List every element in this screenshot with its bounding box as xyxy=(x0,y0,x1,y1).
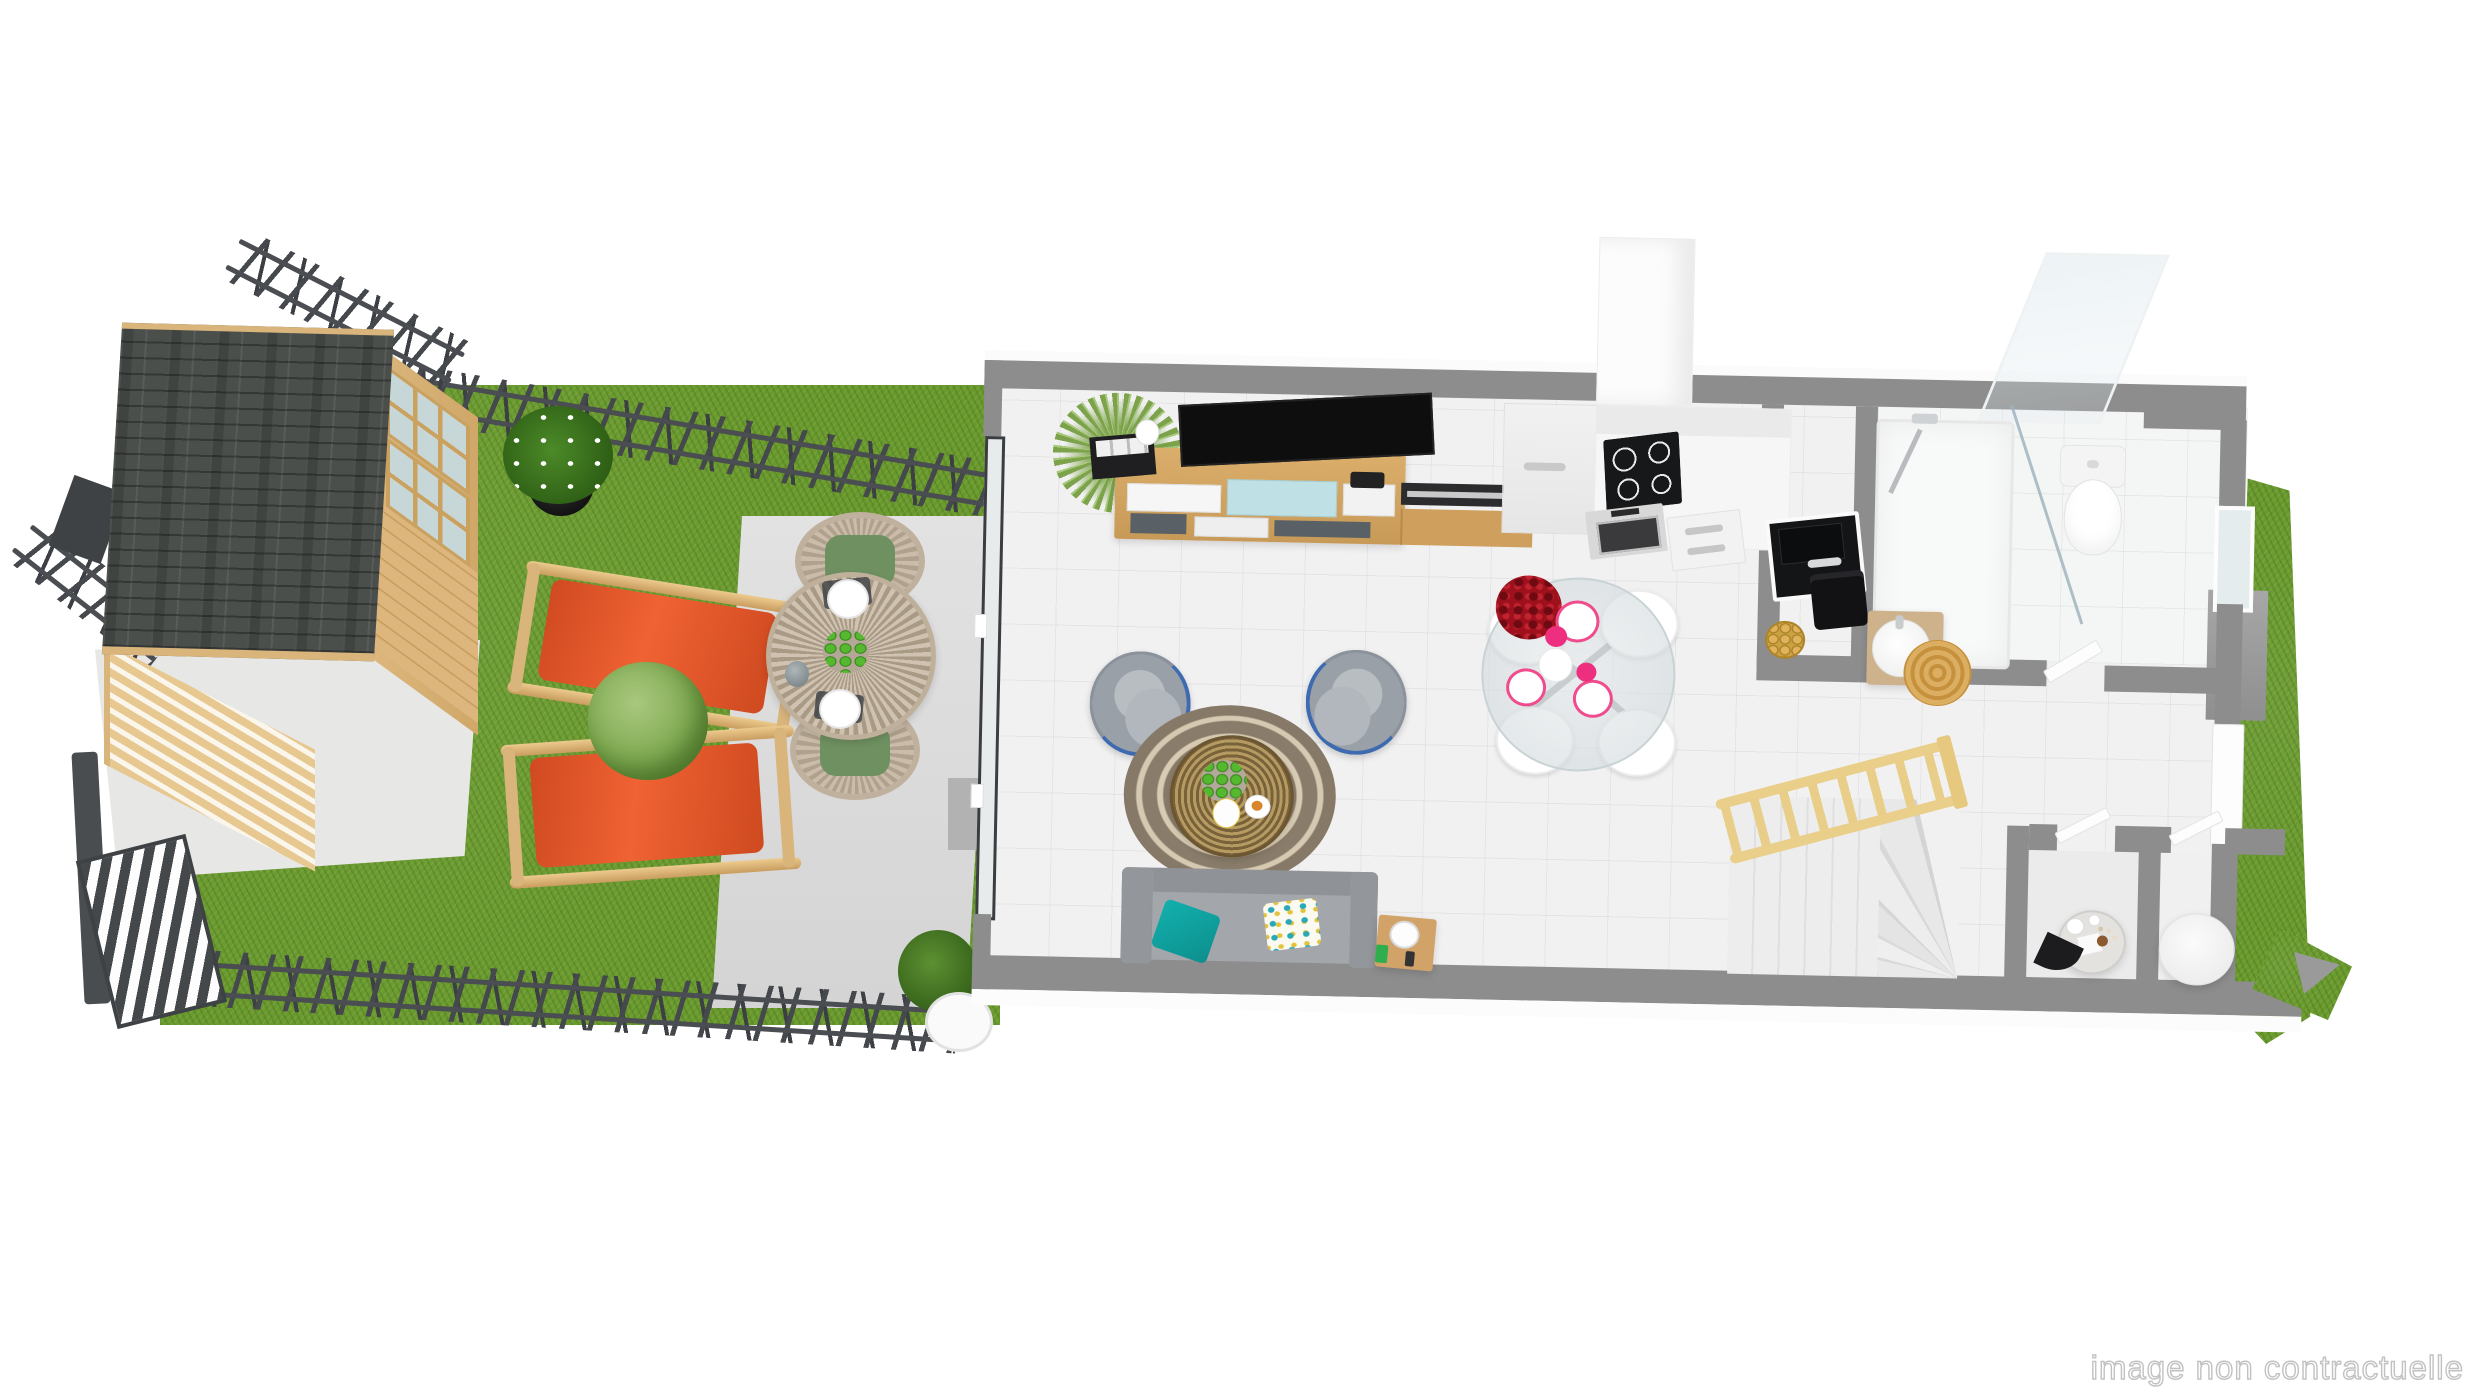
plate xyxy=(819,689,861,729)
plate xyxy=(827,579,869,619)
apple-plate xyxy=(1201,760,1248,803)
induction-hob xyxy=(1603,431,1682,512)
oven xyxy=(1585,503,1668,560)
small-plate xyxy=(2066,918,2084,935)
camera xyxy=(1350,472,1384,489)
shed-roof xyxy=(102,323,394,662)
small-cup xyxy=(2088,914,2100,926)
wall-bath-bottom-b xyxy=(2104,666,2221,694)
remote xyxy=(1405,951,1415,967)
wall-right-1 xyxy=(2219,420,2247,507)
outdoor-table xyxy=(766,572,936,740)
wall-rooms-top-a xyxy=(2029,824,2058,851)
kitchen-drawers xyxy=(1666,509,1746,571)
sofa xyxy=(1120,867,1378,972)
drawer-dark xyxy=(1274,520,1370,538)
wall-rooms-top-c xyxy=(2225,828,2286,855)
shower-head xyxy=(1912,413,1938,424)
wall-stairs-right xyxy=(2004,826,2029,988)
tall-cabinet-top xyxy=(1596,237,1695,407)
flush-button xyxy=(2087,460,2099,468)
black-bin xyxy=(1809,569,1868,630)
drawer-blue xyxy=(1227,479,1338,517)
wall-left-top xyxy=(983,360,1003,436)
apple-bowl xyxy=(823,629,869,673)
drawer-small xyxy=(1343,484,1396,517)
right-window xyxy=(2213,506,2255,613)
cabinet-handle xyxy=(1524,462,1566,471)
oven-display xyxy=(1611,508,1640,517)
table-lamp xyxy=(1388,919,1420,950)
coffee xyxy=(1251,801,1262,811)
backsplash xyxy=(1596,406,1791,438)
white-vase xyxy=(1212,798,1241,829)
window-handle xyxy=(974,614,987,638)
potted-plant-foliage xyxy=(503,406,613,504)
armchair-cushion xyxy=(1314,686,1372,746)
wall-right-2 xyxy=(2214,604,2243,725)
garden-shrub xyxy=(588,662,708,780)
toilet-bowl xyxy=(2063,479,2123,556)
wall-rooms-divider xyxy=(2136,828,2161,990)
green-phone xyxy=(1375,944,1389,963)
drawer-dark xyxy=(1130,513,1186,534)
television xyxy=(1178,393,1435,467)
basin-faucet xyxy=(1895,615,1903,629)
drawer-white xyxy=(1127,483,1222,513)
side-table xyxy=(1374,914,1436,971)
drawer-handle xyxy=(1685,524,1724,535)
drawer-handle xyxy=(1687,544,1726,555)
sofa-arm-right xyxy=(1348,872,1378,969)
sofa-arm-left xyxy=(1120,867,1154,964)
carafe xyxy=(785,661,809,687)
floral-cushion xyxy=(1262,898,1321,952)
coffee-cup xyxy=(1244,795,1270,820)
floorplan-scene: image non contractuelle xyxy=(0,0,2480,1395)
watermark-text: image non contractuelle xyxy=(2091,1349,2464,1387)
window-handle xyxy=(970,784,983,808)
house-ground-floor xyxy=(971,352,2320,1045)
stairs-winder xyxy=(1877,799,1961,979)
drawer-white xyxy=(1194,516,1268,538)
garden-area xyxy=(0,0,1010,1100)
wall-left-bottom xyxy=(972,914,992,989)
oven-window xyxy=(1596,516,1661,555)
